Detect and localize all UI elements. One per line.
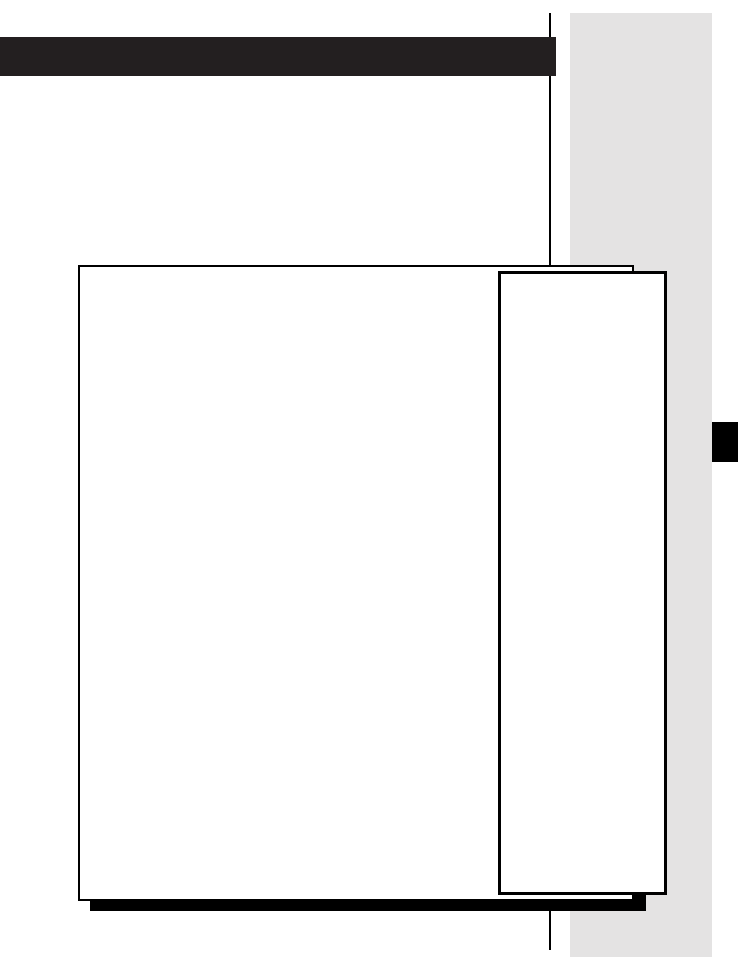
header-banner xyxy=(0,37,556,76)
document-page xyxy=(0,0,738,971)
section-tab-marker xyxy=(712,422,738,462)
side-note-box xyxy=(498,271,667,895)
